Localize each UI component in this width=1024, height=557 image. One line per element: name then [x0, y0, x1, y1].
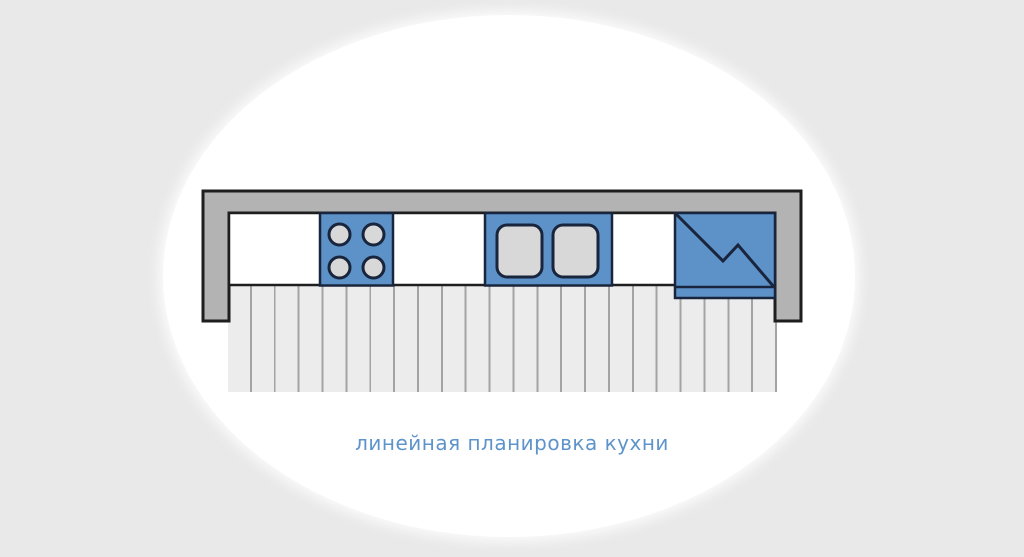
sink-basin-icon — [497, 225, 542, 277]
refrigerator — [675, 213, 775, 298]
kitchen-plan-diagram — [0, 0, 1024, 557]
fridge-body — [675, 213, 775, 298]
burner-icon — [363, 257, 384, 278]
sink-basin-icon — [553, 225, 598, 277]
burner-icon — [363, 224, 384, 245]
page: { "caption": { "text": "линейная планиро… — [0, 0, 1024, 557]
caption: линейная планировка кухни — [0, 430, 1024, 456]
illustration: линейная планировка кухни — [0, 0, 1024, 557]
stove — [320, 213, 393, 286]
sink — [485, 213, 612, 286]
burner-icon — [329, 257, 350, 278]
burner-icon — [329, 224, 350, 245]
